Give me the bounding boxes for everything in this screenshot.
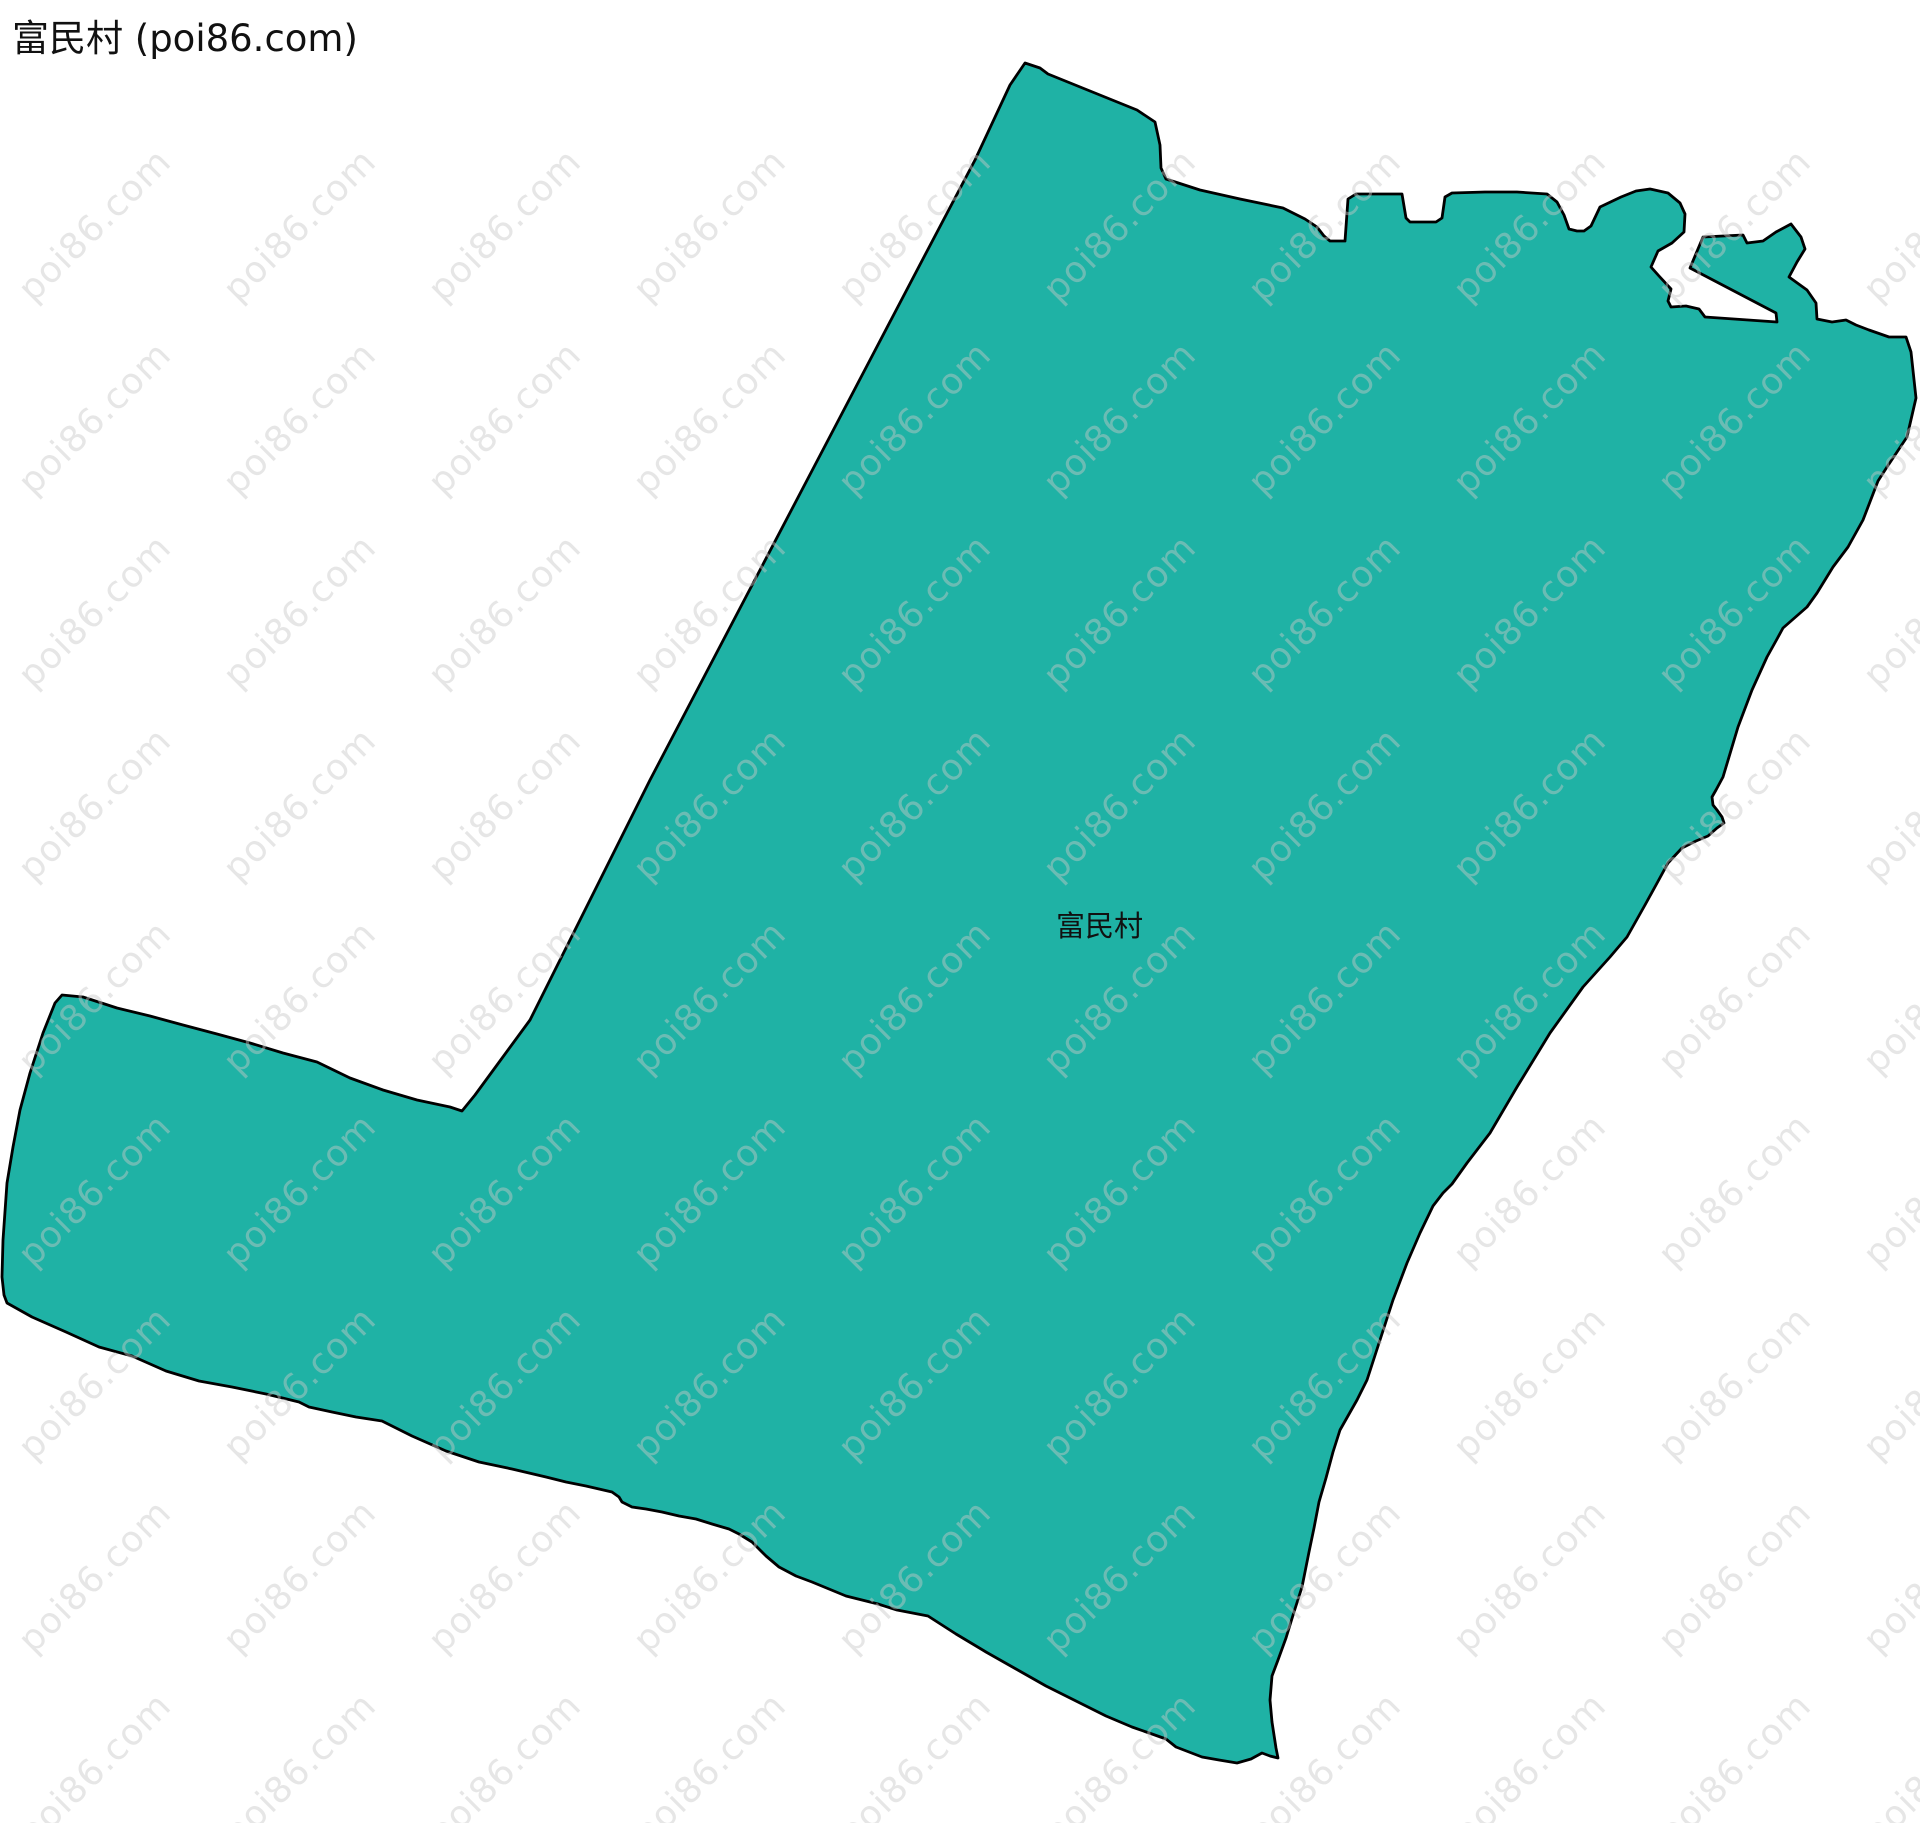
region-label: 富民村	[1056, 903, 1143, 945]
village-boundary-map	[0, 0, 1920, 1823]
page-title: 富民村 (poi86.com)	[12, 8, 358, 62]
map-page: poi86.compoi86.compoi86.compoi86.compoi8…	[0, 0, 1920, 1823]
village-boundary-polygon	[2, 63, 1916, 1763]
